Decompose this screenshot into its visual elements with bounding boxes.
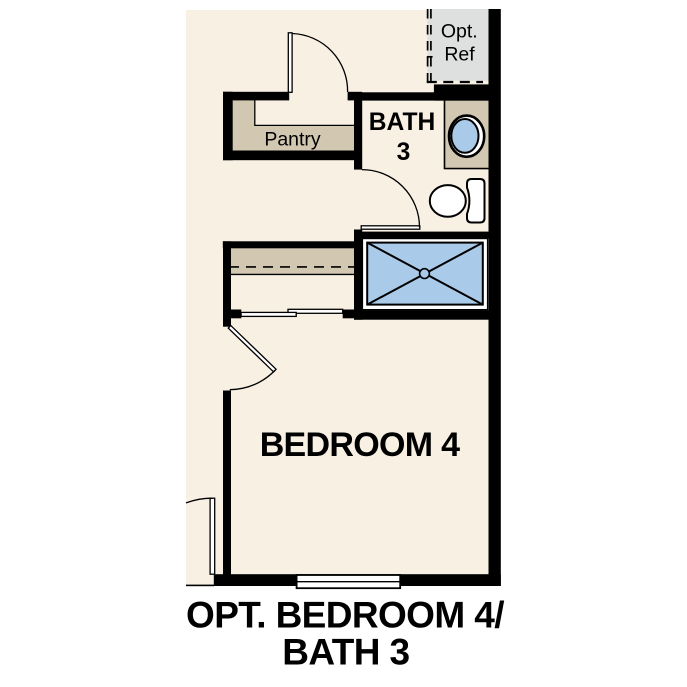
svg-text:BEDROOM 4: BEDROOM 4 xyxy=(260,426,460,464)
svg-text:BATH 3: BATH 3 xyxy=(282,631,409,672)
svg-text:Ref: Ref xyxy=(444,44,475,66)
svg-text:3: 3 xyxy=(397,139,411,166)
svg-text:Opt.: Opt. xyxy=(441,20,478,42)
svg-text:Pantry: Pantry xyxy=(264,129,321,151)
svg-text:BATH: BATH xyxy=(369,109,435,136)
svg-text:OPT. BEDROOM 4/: OPT. BEDROOM 4/ xyxy=(186,595,504,636)
